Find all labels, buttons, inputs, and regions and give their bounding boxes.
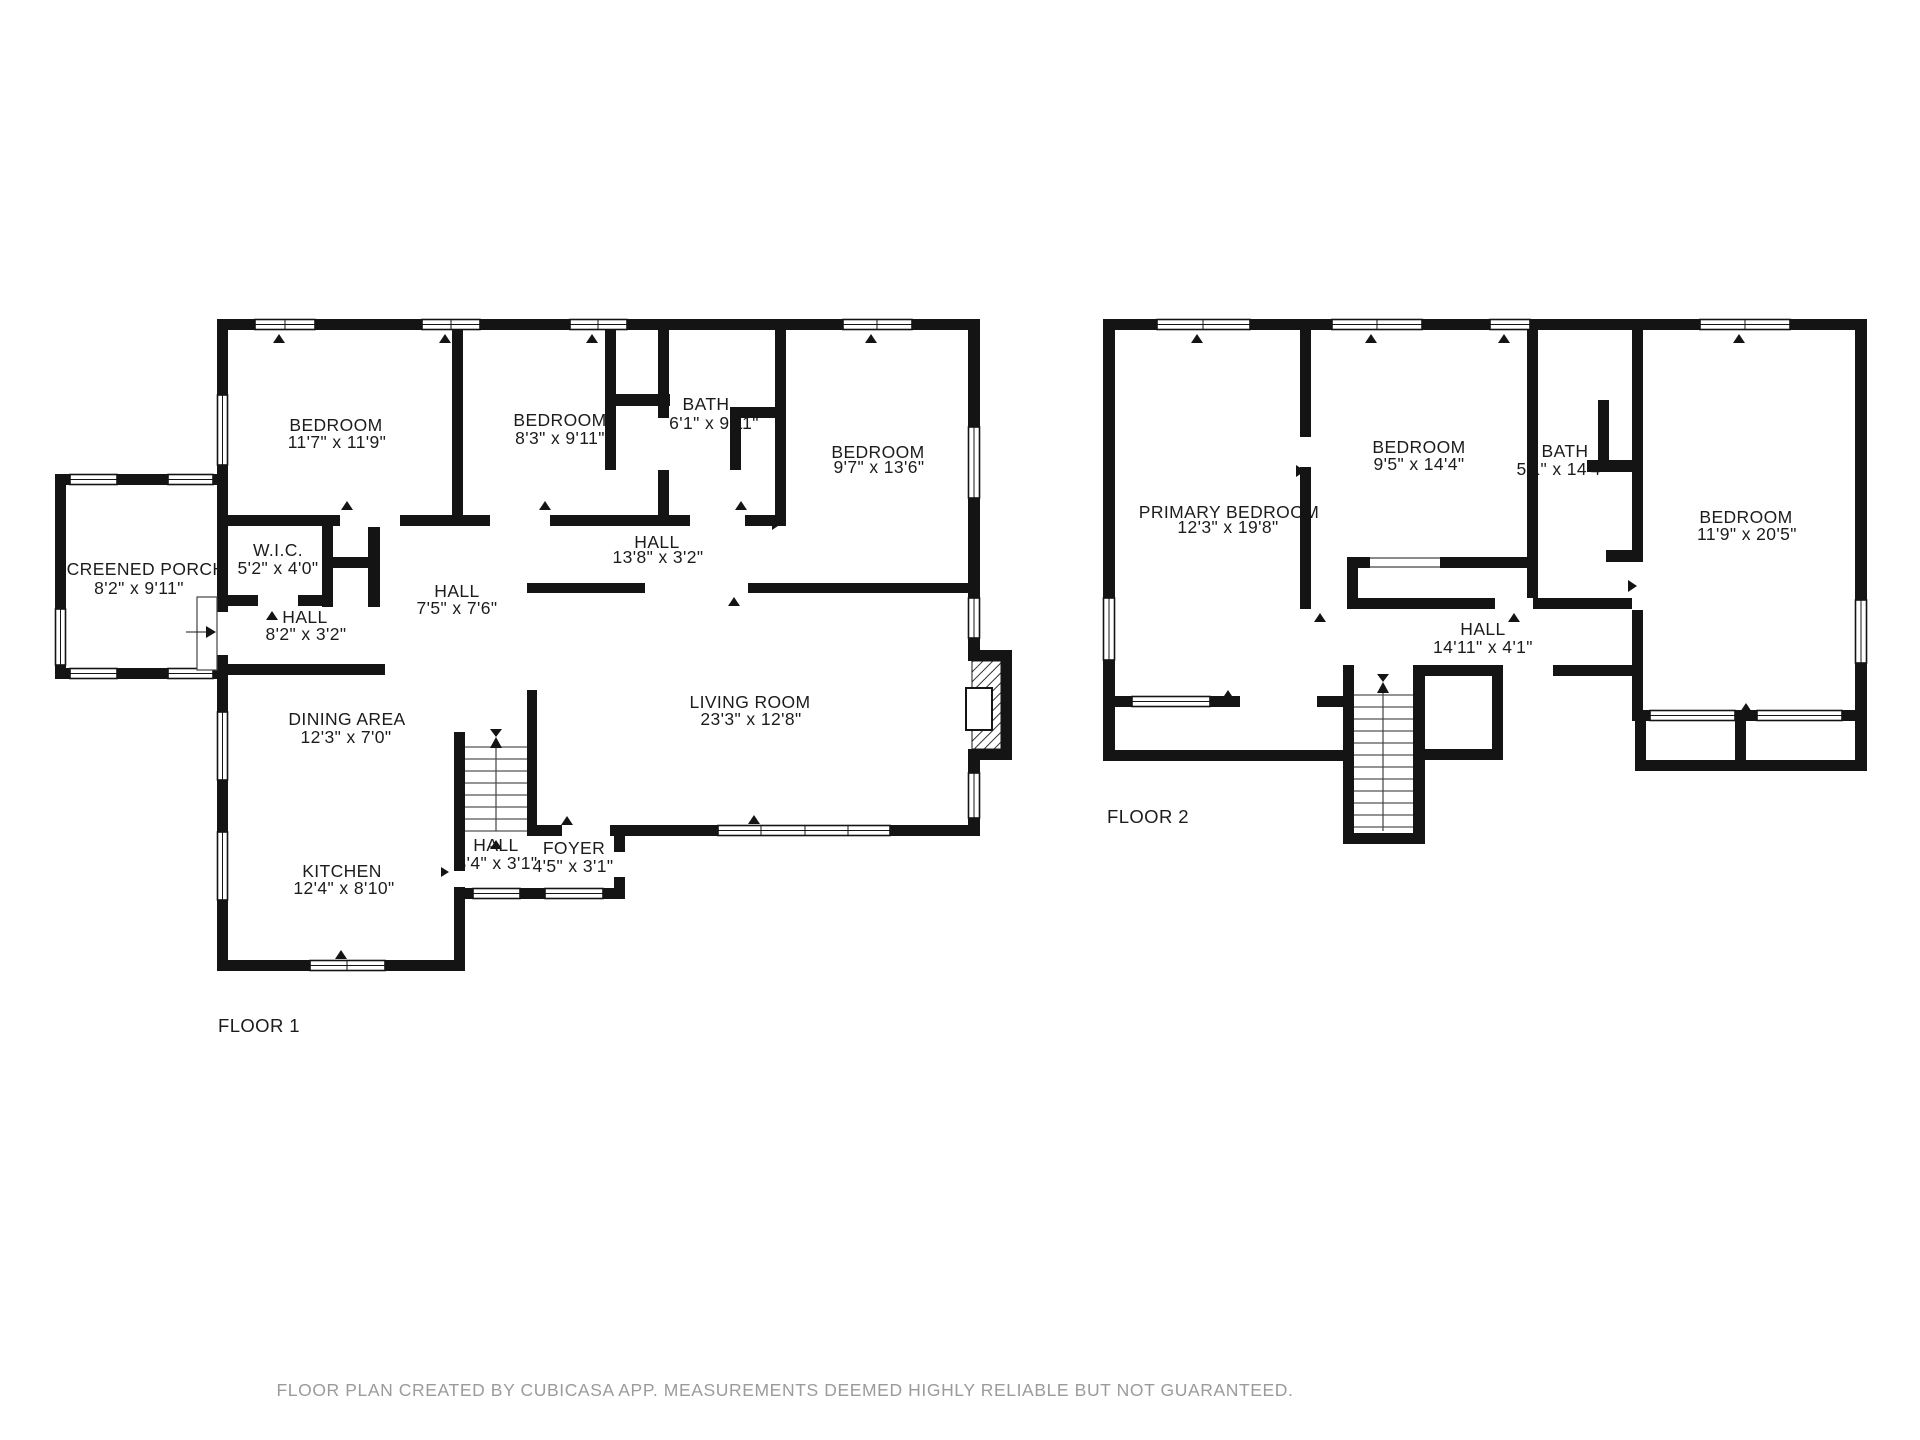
room-dims-hall-82: 8'2" x 3'2": [266, 624, 347, 644]
floor1-label: FLOOR 1: [218, 1015, 300, 1036]
room-dims-kitchen: 12'4" x 8'10": [293, 878, 394, 898]
fireplace: [966, 661, 1001, 749]
room-dims-foyer: 4'5" x 3'1": [533, 856, 614, 876]
room-dims-bedroom-5: 11'9" x 20'5": [1697, 524, 1797, 544]
floor2-label: FLOOR 2: [1107, 806, 1189, 827]
floor2-walls: [1103, 319, 1867, 844]
stairs-up-arrow: [1377, 682, 1389, 693]
room-dims-bedroom-4: 9'5" x 14'4": [1373, 454, 1464, 474]
floor1-room-labels: SCREENED PORCH 8'2" x 9'11" BEDROOM 11'7…: [55, 394, 925, 898]
room-label-screened-porch: SCREENED PORCH: [55, 559, 226, 579]
room-dims-hall-138: 13'8" x 3'2": [612, 547, 703, 567]
footer-text: FLOOR PLAN CREATED BY CUBICASA APP. MEAS…: [276, 1380, 1293, 1400]
porch-door: [186, 597, 217, 670]
room-label-wic: W.I.C.: [253, 540, 303, 560]
floor1-staircase: [465, 729, 527, 831]
floor1-plan: SCREENED PORCH 8'2" x 9'11" BEDROOM 11'7…: [55, 319, 1012, 971]
room-dims-hall-34: 3'4" x 3'1": [457, 853, 538, 873]
room-dims-hall-1411: 14'11" x 4'1": [1433, 637, 1533, 657]
room-dims-primary-bedroom: 12'3" x 19'8": [1177, 517, 1278, 537]
room-dims-screened-porch: 8'2" x 9'11": [94, 578, 184, 598]
room-dims-wic: 5'2" x 4'0": [238, 558, 319, 578]
room-label-bedroom-2: BEDROOM: [513, 410, 606, 430]
floor2-plan: PRIMARY BEDROOM 12'3" x 19'8" BEDROOM 9'…: [1103, 319, 1867, 844]
room-dims-bedroom-3: 9'7" x 13'6": [833, 457, 924, 477]
room-dims-hall-75: 7'5" x 7'6": [417, 598, 498, 618]
floor-plan-image: SCREENED PORCH 8'2" x 9'11" BEDROOM 11'7…: [0, 0, 1920, 1440]
room-label-dining-area: DINING AREA: [288, 709, 405, 729]
stairs-up-arrow: [490, 737, 502, 748]
room-dims-bedroom-2: 8'3" x 9'11": [515, 428, 605, 448]
room-label-bath-1: BATH: [683, 394, 730, 414]
room-dims-living-room: 23'3" x 12'8": [700, 709, 801, 729]
floor-plan-svg: SCREENED PORCH 8'2" x 9'11" BEDROOM 11'7…: [0, 0, 1920, 1440]
floor2-room-labels: PRIMARY BEDROOM 12'3" x 19'8" BEDROOM 9'…: [1139, 437, 1797, 657]
room-label-hall-1411: HALL: [1460, 619, 1505, 639]
floor2-staircase: [1354, 674, 1413, 831]
room-dims-bedroom-1: 11'7" x 11'9": [288, 432, 387, 452]
room-label-bath-2: BATH: [1542, 441, 1589, 461]
room-dims-dining-area: 12'3" x 7'0": [300, 727, 391, 747]
room-label-foyer: FOYER: [543, 838, 605, 858]
